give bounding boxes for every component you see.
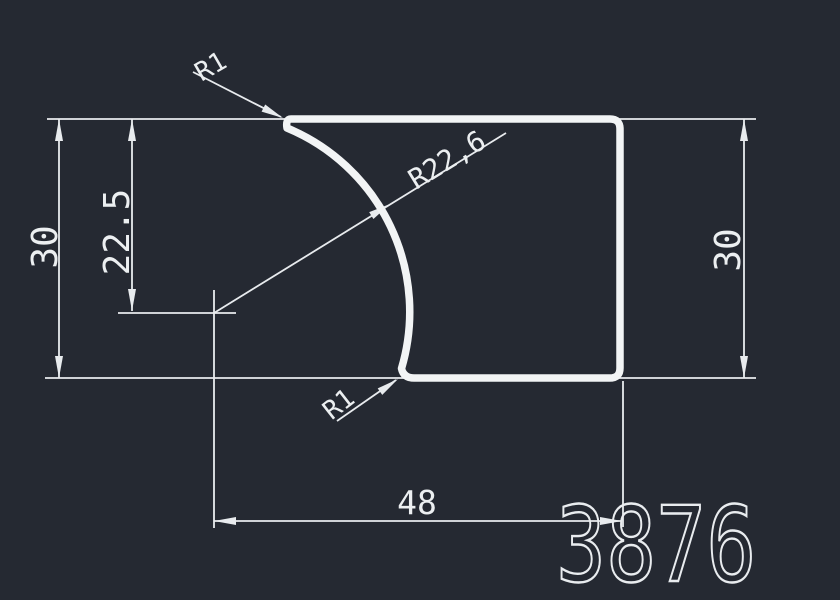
part-number: 3876 — [556, 486, 756, 600]
dimension-label-height-right: 30 — [708, 228, 749, 271]
cad-drawing-canvas: 30 22.5 30 48 R1 R22,6 R1 3876 — [0, 0, 840, 600]
dimension-label-height-left: 30 — [25, 225, 66, 268]
technical-drawing: 30 22.5 30 48 R1 R22,6 R1 3876 — [0, 0, 840, 600]
dimension-label-width: 48 — [397, 483, 437, 522]
part-number-text: 3876 — [556, 486, 756, 600]
dimension-label-offset-height: 22.5 — [97, 189, 138, 276]
